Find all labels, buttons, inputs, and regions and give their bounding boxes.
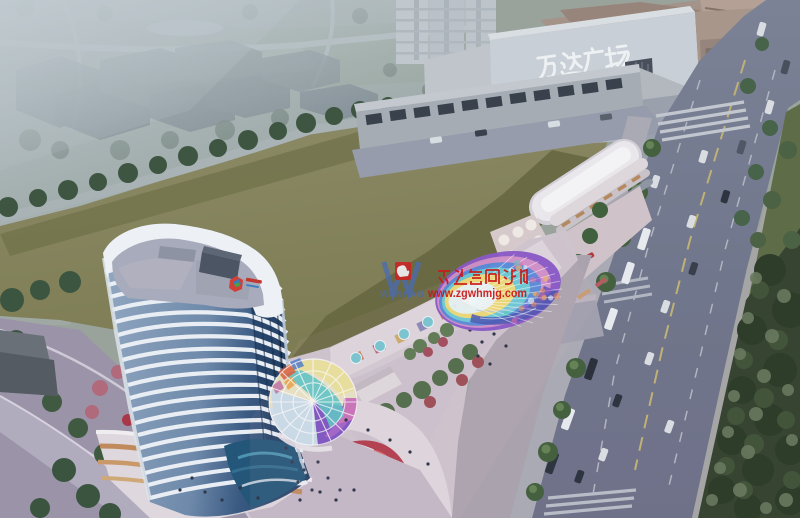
svg-text:WANHAO: WANHAO bbox=[380, 289, 425, 299]
svg-text:www.zgwhmjg.com: www.zgwhmjg.com bbox=[427, 286, 527, 300]
